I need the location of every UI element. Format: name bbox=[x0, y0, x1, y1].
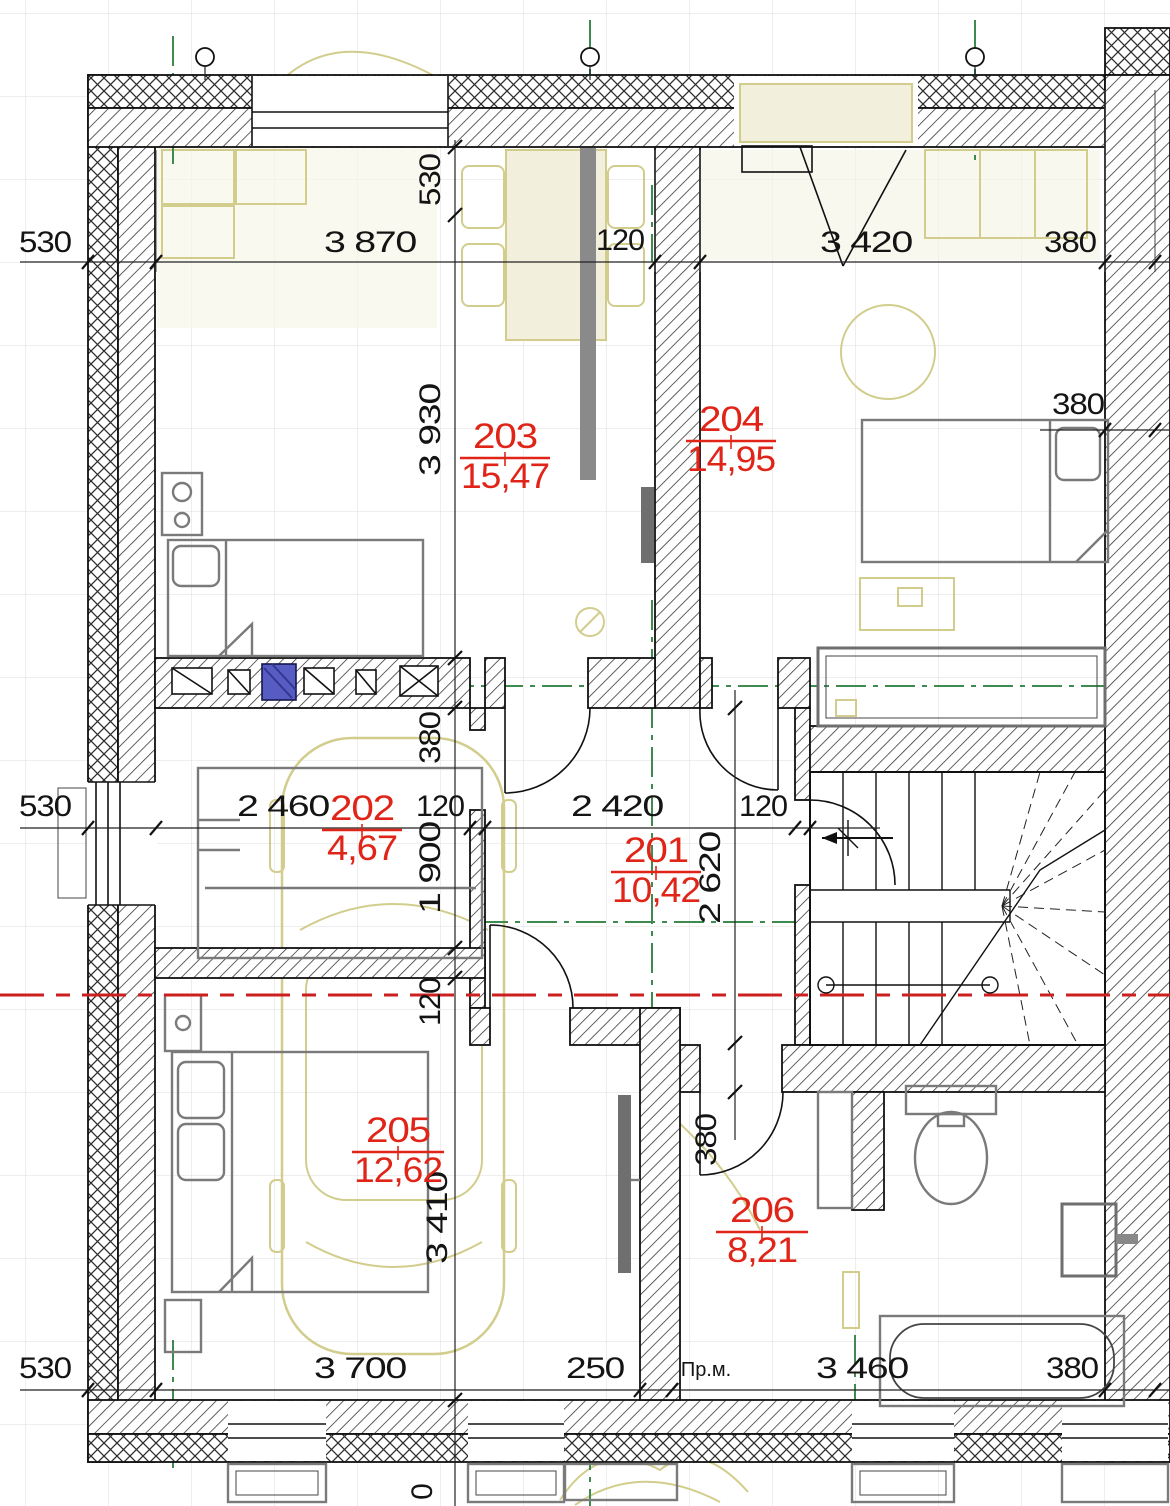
wall-stub-206 bbox=[852, 1092, 884, 1210]
wall-205-206 bbox=[640, 1008, 680, 1400]
room-area: 8,21 bbox=[727, 1231, 797, 1270]
dim-label: 380 bbox=[1052, 388, 1104, 421]
room-label-204: 204 14,95 bbox=[686, 400, 776, 479]
stair-top-wall bbox=[810, 726, 1105, 772]
dim-label: 120 bbox=[596, 224, 644, 257]
dim-label: 530 bbox=[19, 790, 71, 823]
dim-label: 250 bbox=[566, 1352, 624, 1385]
dim-label: 120 bbox=[739, 790, 787, 823]
axis-marker bbox=[196, 48, 214, 66]
room-label-203: 203 15,47 bbox=[460, 417, 550, 496]
dim-label: 380 bbox=[1044, 226, 1096, 259]
dim-label: 380 bbox=[1046, 1352, 1098, 1385]
floor-plan-canvas: 530 3 870 120 3 420 380 530 2 460 120 2 … bbox=[0, 0, 1170, 1506]
dim-label: 530 bbox=[414, 154, 447, 206]
floor-plan-drawing: 530 3 870 120 3 420 380 530 2 460 120 2 … bbox=[0, 0, 1170, 1506]
wardrobe-band bbox=[580, 148, 596, 480]
room-area: 14,95 bbox=[687, 440, 775, 479]
room-number: 201 bbox=[624, 831, 688, 870]
dim-label: 0 bbox=[406, 1484, 439, 1500]
dim-label: 380 bbox=[690, 1114, 723, 1166]
tv-panel-204 bbox=[641, 487, 654, 563]
tv-panel-205 bbox=[618, 1095, 631, 1273]
dim-label: 530 bbox=[19, 226, 71, 259]
flue-marker-blue bbox=[262, 664, 296, 700]
stair-left-wall bbox=[795, 885, 810, 1045]
room-number: 202 bbox=[330, 789, 394, 828]
axis-marker bbox=[581, 48, 599, 66]
dim-label: 3 420 bbox=[820, 226, 912, 259]
room-area: 10,42 bbox=[612, 871, 700, 910]
wall-202-205 bbox=[155, 948, 485, 978]
dim-label: 3 700 bbox=[314, 1352, 406, 1385]
axis-marker bbox=[966, 48, 984, 66]
room-area: 15,47 bbox=[461, 457, 549, 496]
room-label-201: 201 10,42 bbox=[611, 831, 701, 910]
dim-label: 3 460 bbox=[816, 1352, 908, 1385]
room-number: 203 bbox=[473, 417, 537, 456]
room-label-202: 202 4,67 bbox=[322, 789, 402, 868]
dim-label: 380 bbox=[414, 712, 447, 764]
dim-label: 2 420 bbox=[571, 790, 663, 823]
room-area: 12,62 bbox=[354, 1151, 442, 1190]
room-number: 205 bbox=[366, 1111, 430, 1150]
dim-label: 120 bbox=[416, 790, 464, 823]
room-area: 4,67 bbox=[327, 829, 397, 868]
dim-label: 3 870 bbox=[324, 226, 416, 259]
dim-label: 1 900 bbox=[414, 822, 447, 914]
window-top-a bbox=[252, 76, 448, 146]
room-number: 204 bbox=[699, 400, 764, 439]
dim-label: 2 460 bbox=[237, 790, 329, 823]
dim-label: 120 bbox=[414, 978, 447, 1026]
premises-label: Пр.м. bbox=[681, 1359, 731, 1381]
room-number: 206 bbox=[730, 1191, 794, 1230]
wall-203-204 bbox=[655, 147, 700, 708]
dim-label: 3 930 bbox=[414, 384, 447, 476]
dim-label: 530 bbox=[19, 1352, 71, 1385]
